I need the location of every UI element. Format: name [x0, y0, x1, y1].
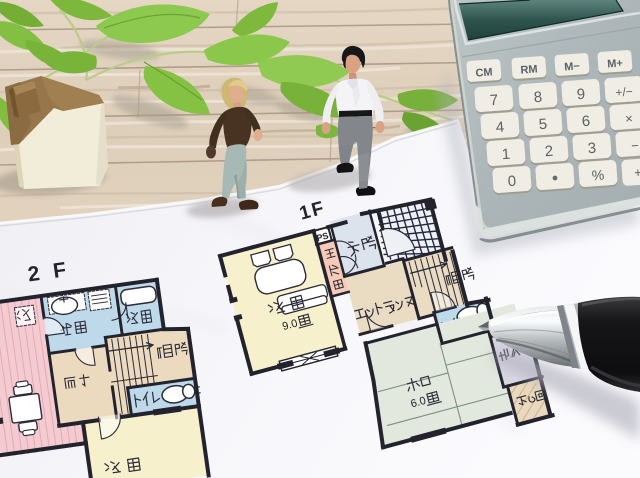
svg-text:4: 4 [495, 119, 505, 137]
svg-text:M+: M+ [607, 57, 623, 70]
svg-text:2: 2 [544, 143, 554, 161]
svg-text:9: 9 [576, 86, 586, 104]
svg-text:0: 0 [507, 173, 517, 191]
svg-text:+/−: +/− [615, 84, 633, 99]
svg-text:CM: CM [475, 66, 493, 79]
svg-text:3: 3 [587, 140, 597, 158]
svg-text:×: × [625, 111, 634, 126]
svg-text:RM: RM [520, 63, 538, 76]
svg-text:8: 8 [533, 89, 543, 107]
svg-text:%: % [591, 167, 605, 184]
svg-text:7: 7 [489, 92, 499, 110]
svg-text:−: − [631, 138, 640, 153]
svg-text:6: 6 [581, 113, 591, 131]
svg-text:5: 5 [538, 116, 548, 134]
svg-text:M−: M− [564, 60, 580, 73]
svg-text:1: 1 [501, 146, 511, 164]
svg-text:+: + [634, 165, 640, 180]
